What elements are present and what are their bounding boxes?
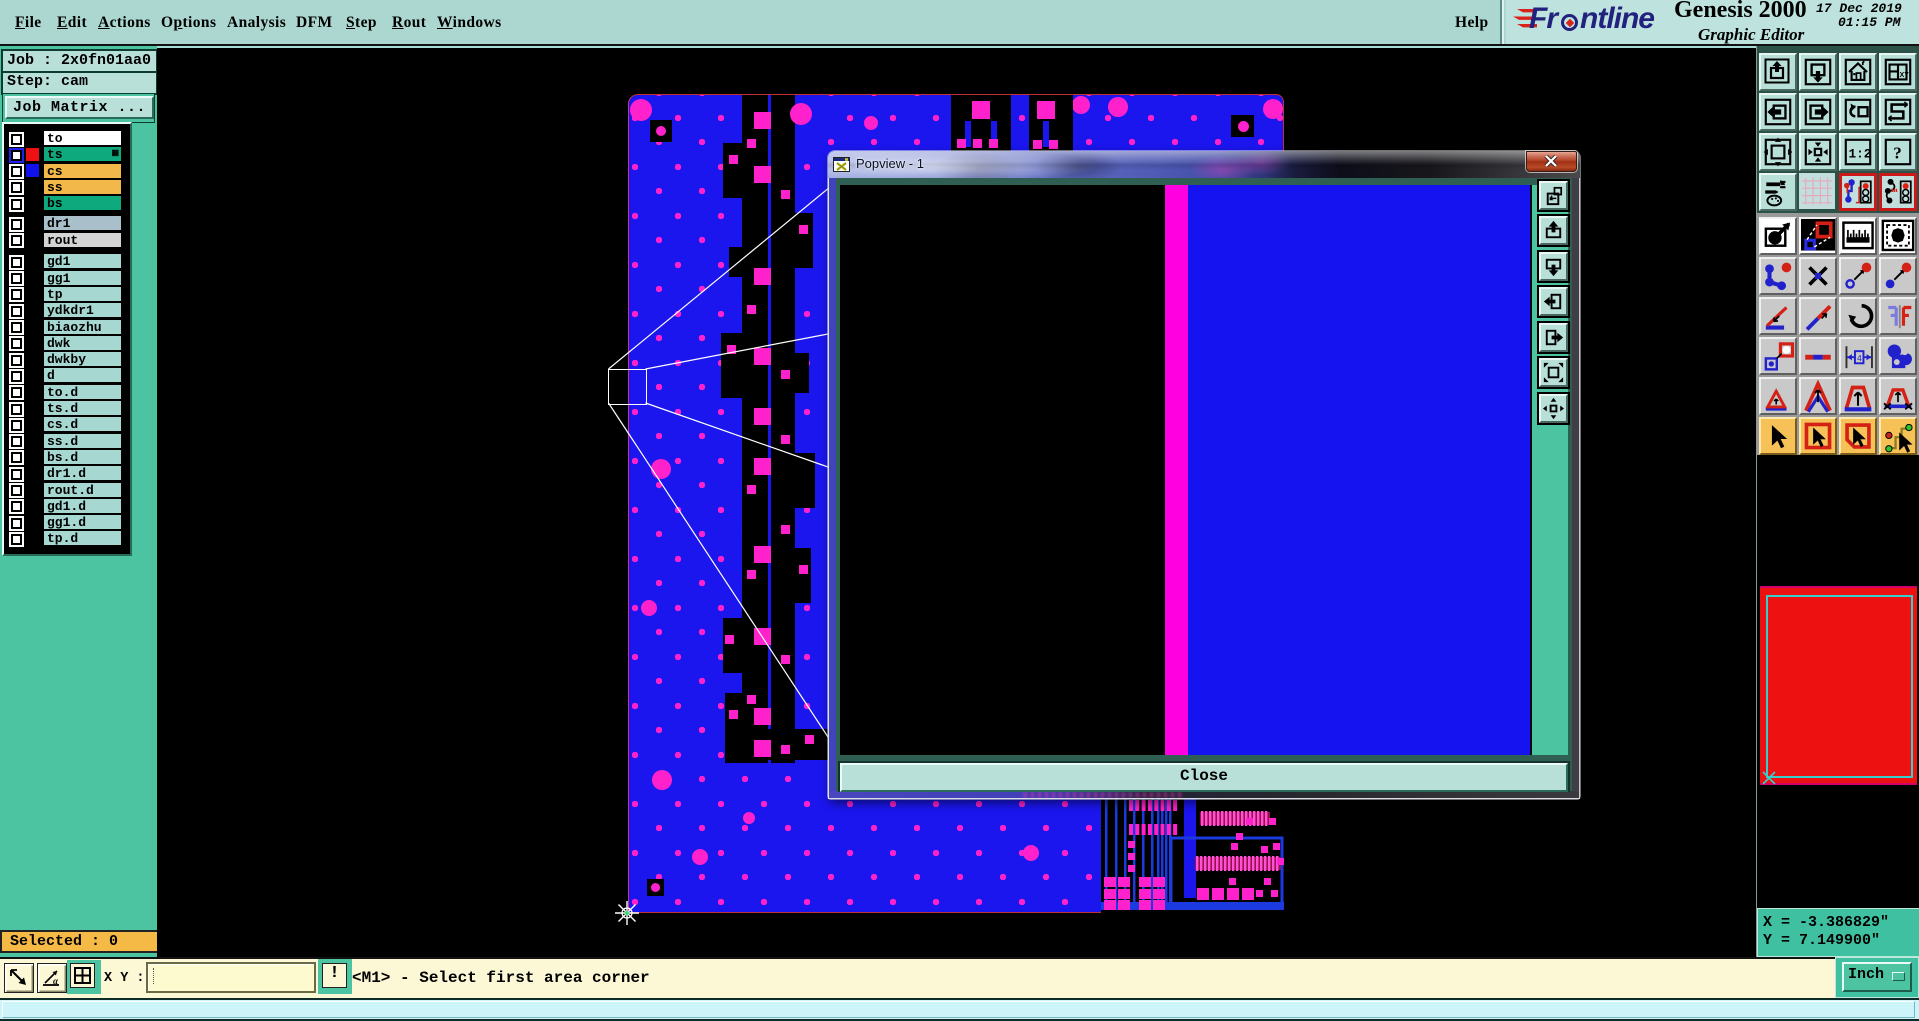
svg-text:1:2: 1:2 [1848,146,1871,161]
svg-text:XY: XY [1900,72,1910,79]
svg-text:4: 4 [1857,353,1862,363]
svg-text:?: ? [1893,143,1902,162]
